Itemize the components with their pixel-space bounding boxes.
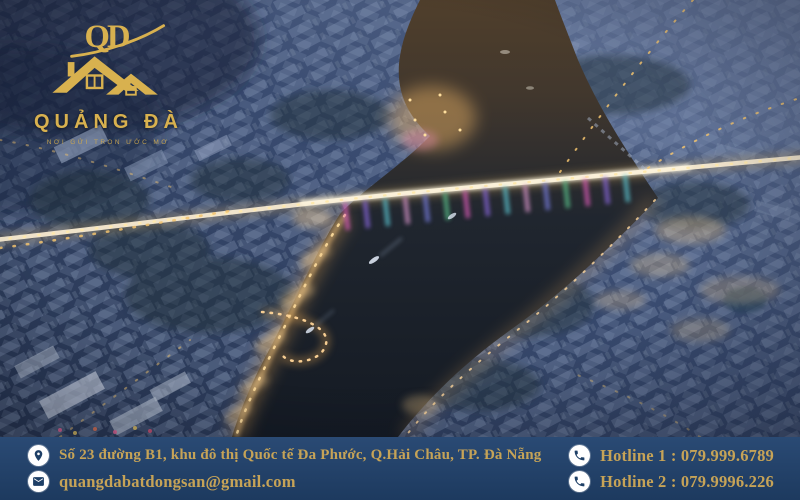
envelope-icon: [28, 471, 49, 492]
address-text: Số 23 đường B1, khu đô thị Quốc tế Đa Ph…: [59, 447, 541, 464]
logo-monogram: QD: [85, 19, 129, 55]
email-row: quangdabatdongsan@gmail.com: [28, 471, 541, 492]
contact-bar: Số 23 đường B1, khu đô thị Quốc tế Đa Ph…: [0, 437, 800, 500]
real-estate-poster: QD QUẢNG ĐÀ NƠI GỬI TRỌN ƯỚC MƠ Số 23 đư…: [0, 0, 800, 500]
contact-left-column: Số 23 đường B1, khu đô thị Quốc tế Đa Ph…: [28, 445, 541, 492]
logo-emblem: QD: [48, 18, 168, 110]
email-text: quangdabatdongsan@gmail.com: [59, 472, 296, 492]
brand-logo: QD QUẢNG ĐÀ NƠI GỬI TRỌN ƯỚC MƠ: [34, 18, 182, 146]
hotline1-text: Hotline 1 : 079.999.6789: [600, 446, 774, 466]
hotline2-row: Hotline 2 : 079.9996.226: [569, 471, 774, 492]
phone-icon: [569, 471, 590, 492]
address-row: Số 23 đường B1, khu đô thị Quốc tế Đa Ph…: [28, 445, 541, 466]
house-roof-icon: [52, 56, 157, 94]
brand-name: QUẢNG ĐÀ: [34, 111, 182, 134]
location-pin-icon: [28, 445, 49, 466]
hotline2-text: Hotline 2 : 079.9996.226: [600, 472, 774, 492]
hotline1-row: Hotline 1 : 079.999.6789: [569, 445, 774, 466]
contact-right-column: Hotline 1 : 079.999.6789 Hotline 2 : 079…: [569, 445, 774, 492]
brand-tagline: NƠI GỬI TRỌN ƯỚC MƠ: [34, 139, 182, 146]
phone-icon: [569, 445, 590, 466]
